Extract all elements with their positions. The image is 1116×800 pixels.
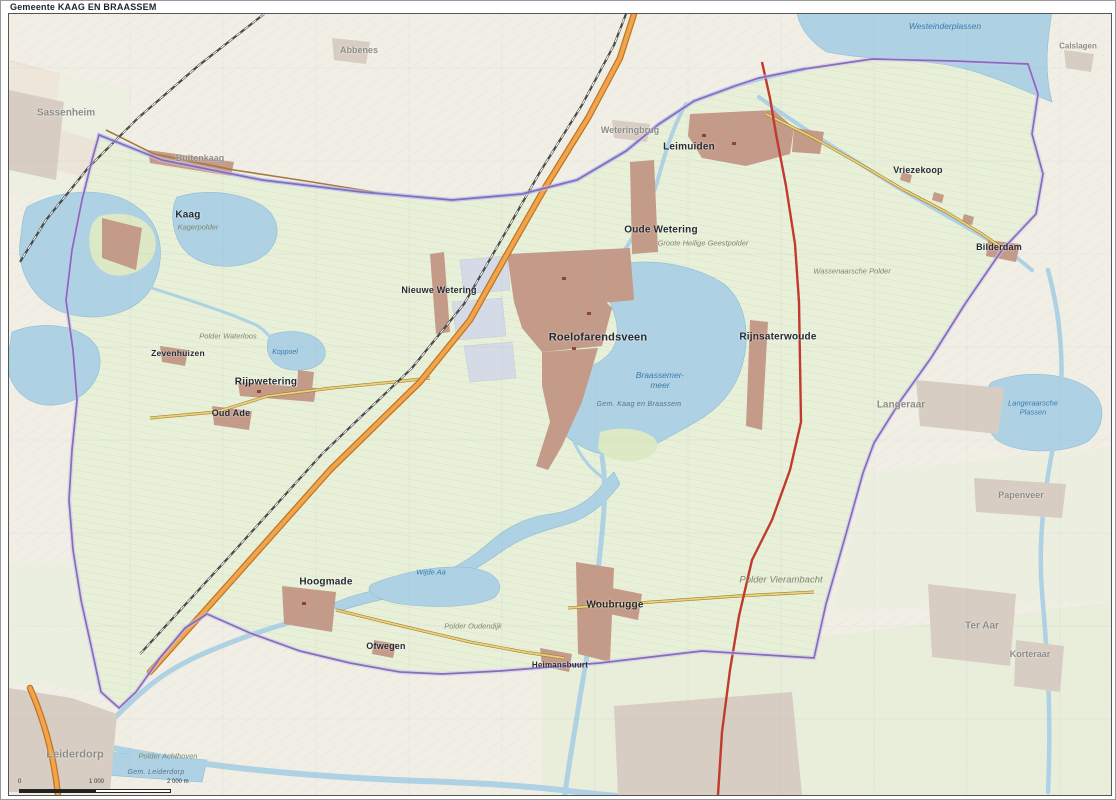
oude-wetering-village	[630, 160, 658, 254]
page-title: Gemeente KAAG EN BRAASSEM	[10, 2, 157, 12]
langeraarsche-plassen-lake	[983, 374, 1102, 451]
sassenheim-area	[9, 90, 64, 180]
map-canvas: LeimuidenOude WeteringNieuwe WeteringRoe…	[8, 13, 1112, 796]
topographic-map	[9, 14, 1111, 795]
map-page: Gemeente KAAG EN BRAASSEM	[0, 0, 1116, 800]
roelofarendsveen-village	[507, 248, 634, 307]
